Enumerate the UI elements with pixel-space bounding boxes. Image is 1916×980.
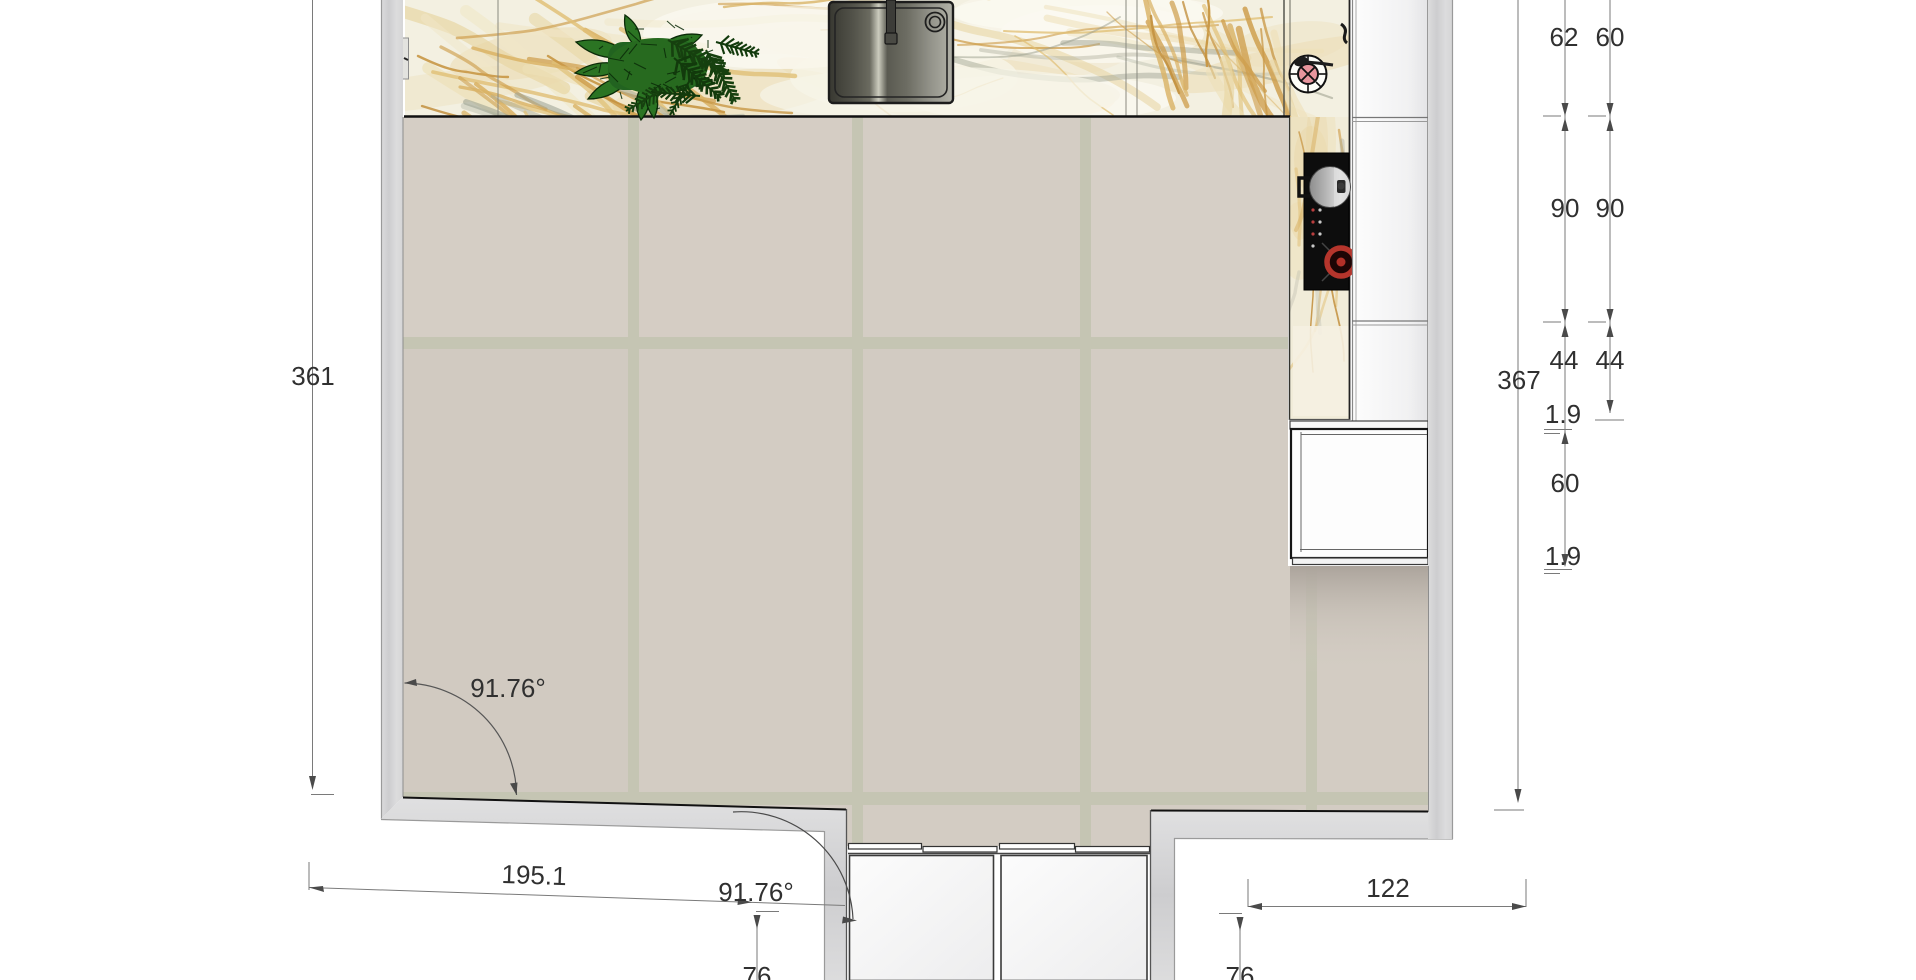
svg-text:76: 76 — [743, 961, 772, 980]
svg-text:76: 76 — [1226, 961, 1255, 980]
svg-text:60: 60 — [1551, 468, 1580, 498]
svg-text:91.76°: 91.76° — [718, 877, 793, 907]
svg-text:195.1: 195.1 — [501, 859, 567, 891]
svg-text:62: 62 — [1550, 22, 1579, 52]
svg-text:1.9: 1.9 — [1545, 541, 1581, 571]
svg-text:91.76°: 91.76° — [470, 673, 545, 703]
svg-text:44: 44 — [1550, 345, 1579, 375]
svg-text:44: 44 — [1596, 345, 1625, 375]
svg-text:1.9: 1.9 — [1545, 399, 1581, 429]
svg-text:60: 60 — [1596, 22, 1625, 52]
svg-text:90: 90 — [1596, 193, 1625, 223]
svg-text:367: 367 — [1497, 365, 1540, 395]
svg-text:90: 90 — [1551, 193, 1580, 223]
svg-text:122: 122 — [1366, 873, 1409, 903]
svg-text:361: 361 — [291, 361, 334, 391]
